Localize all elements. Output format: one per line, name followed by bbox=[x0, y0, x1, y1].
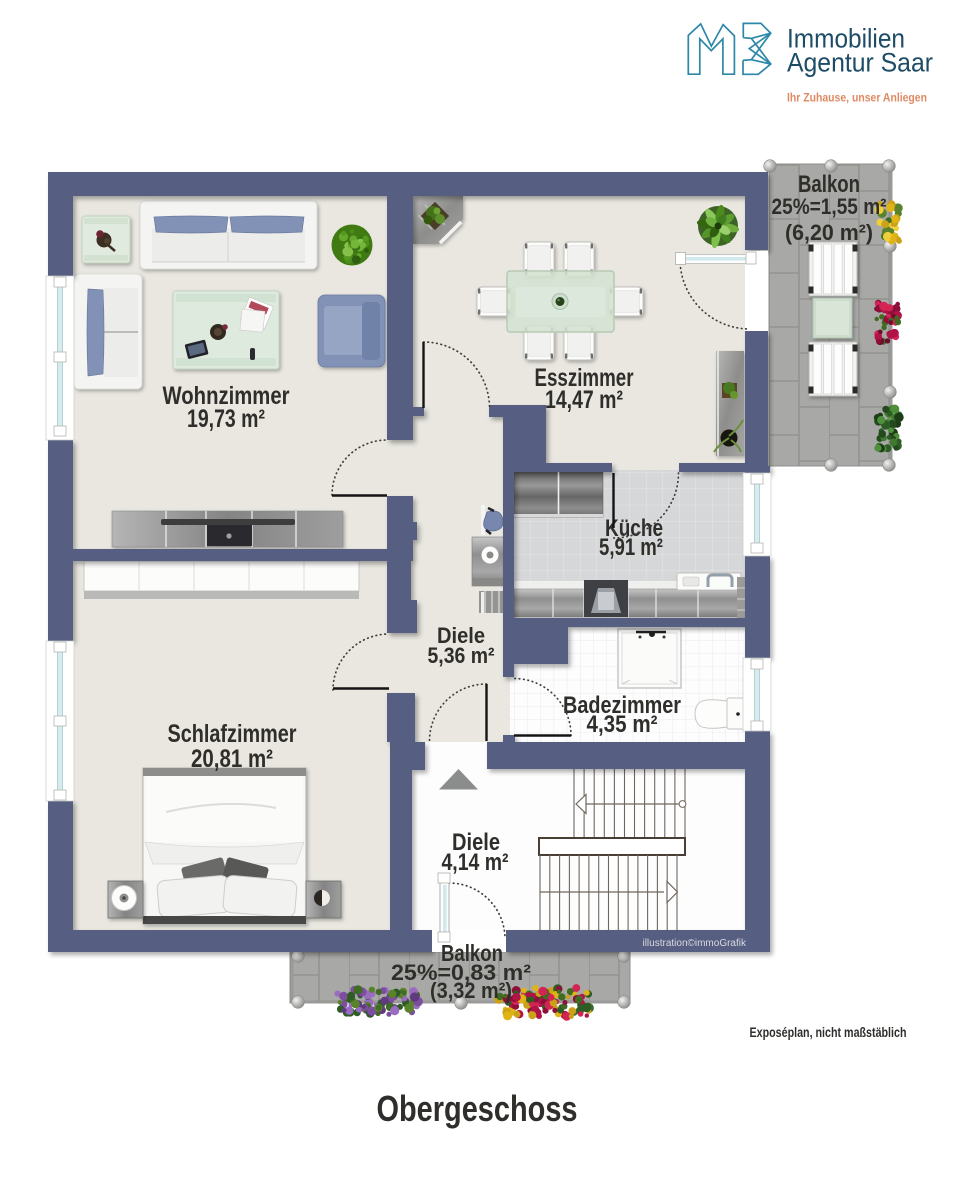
svg-text:20,81 m²: 20,81 m² bbox=[191, 745, 273, 773]
svg-text:25%=1,55 m²: 25%=1,55 m² bbox=[772, 194, 887, 219]
svg-text:Exposéplan, nicht maßstäblich: Exposéplan, nicht maßstäblich bbox=[750, 1024, 907, 1040]
svg-text:(3,32 m²): (3,32 m²) bbox=[430, 978, 512, 1003]
svg-text:Ihr Zuhause, unser Anliegen: Ihr Zuhause, unser Anliegen bbox=[787, 91, 927, 105]
svg-text:14,47 m²: 14,47 m² bbox=[545, 386, 623, 414]
svg-text:5,91 m²: 5,91 m² bbox=[599, 534, 663, 561]
svg-text:Agentur Saar: Agentur Saar bbox=[787, 48, 933, 78]
svg-text:4,14 m²: 4,14 m² bbox=[442, 849, 509, 876]
svg-text:illustration©immoGrafik: illustration©immoGrafik bbox=[642, 938, 747, 949]
svg-text:(6,20 m²): (6,20 m²) bbox=[785, 220, 873, 245]
svg-text:Schlafzimmer: Schlafzimmer bbox=[168, 720, 297, 748]
svg-text:Obergeschoss: Obergeschoss bbox=[377, 1088, 578, 1129]
svg-text:19,73 m²: 19,73 m² bbox=[187, 405, 265, 433]
svg-text:5,36 m²: 5,36 m² bbox=[428, 643, 495, 668]
svg-text:4,35 m²: 4,35 m² bbox=[587, 711, 658, 738]
